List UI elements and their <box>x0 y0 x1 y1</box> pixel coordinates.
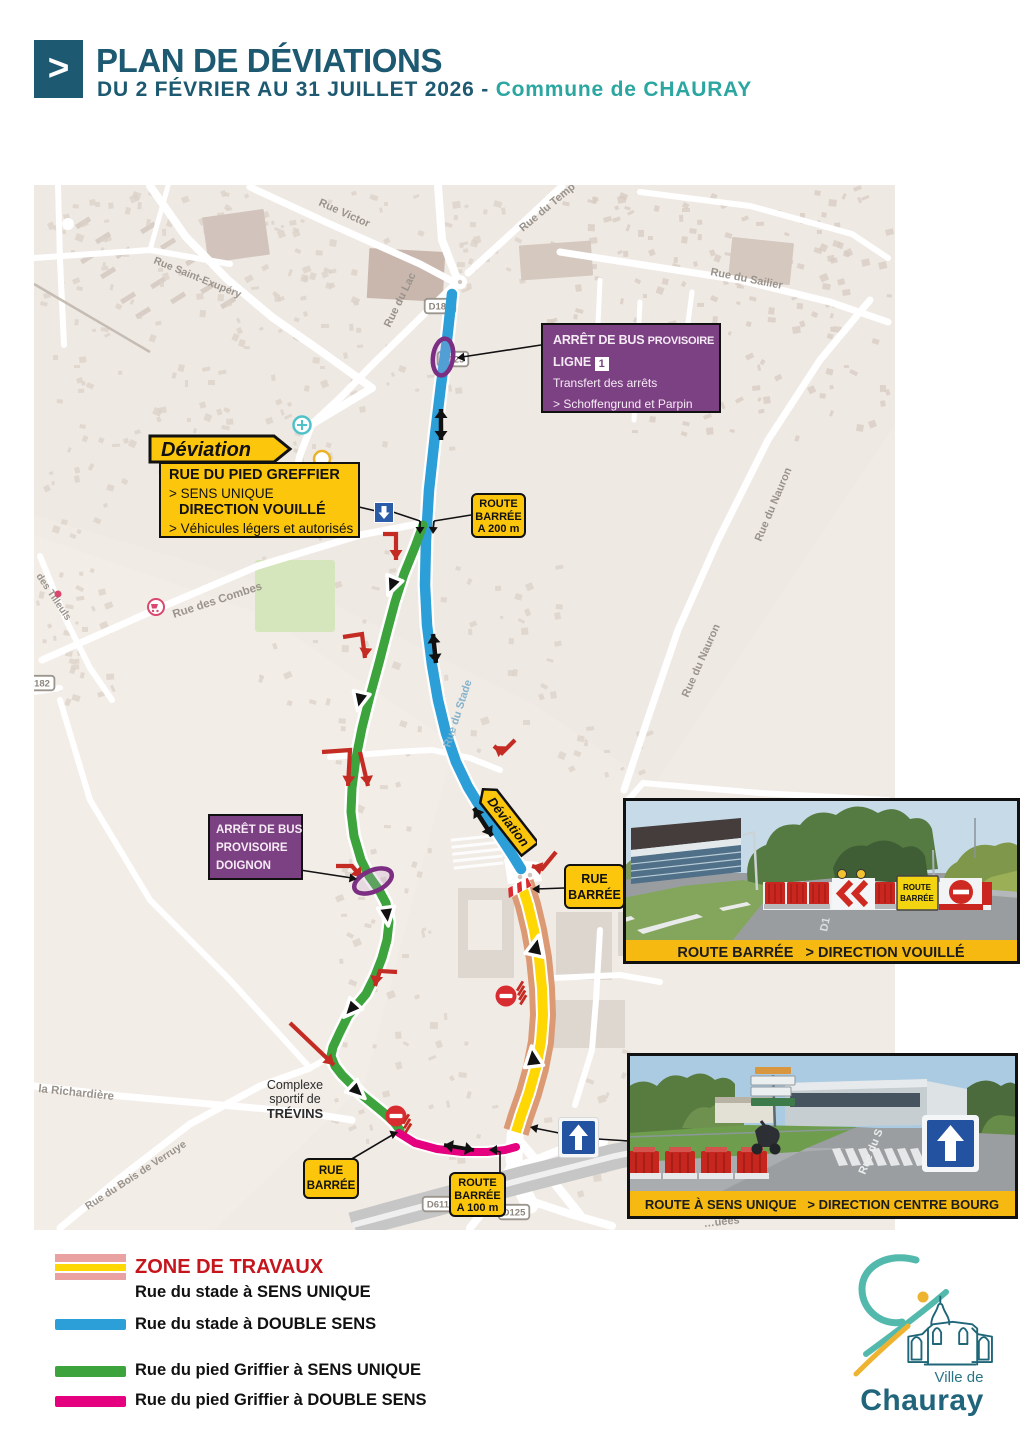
svg-text:Complexe: Complexe <box>267 1078 323 1092</box>
svg-text:182: 182 <box>34 678 50 689</box>
svg-text:Chauray: Chauray <box>860 1384 984 1417</box>
svg-text:Déviation: Déviation <box>484 794 532 849</box>
svg-text:TRÉVINS: TRÉVINS <box>267 1106 324 1121</box>
svg-text:ROUTE À SENS UNIQUE > DIRECT: ROUTE À SENS UNIQUE > DIRECTION CENTRE B… <box>645 1197 999 1212</box>
svg-text:ROUTE: ROUTE <box>903 883 932 892</box>
svg-text:D611: D611 <box>427 1199 450 1210</box>
svg-text:BARRÉE: BARRÉE <box>900 894 934 903</box>
svg-text:D125: D125 <box>503 1207 526 1218</box>
svg-text:Déviation: Déviation <box>161 439 251 461</box>
svg-text:sportif de: sportif de <box>269 1092 320 1106</box>
svg-text:ROUTE BARRÉE > DIRECTION VOU: ROUTE BARRÉE > DIRECTION VOUILLÉ <box>677 944 965 961</box>
